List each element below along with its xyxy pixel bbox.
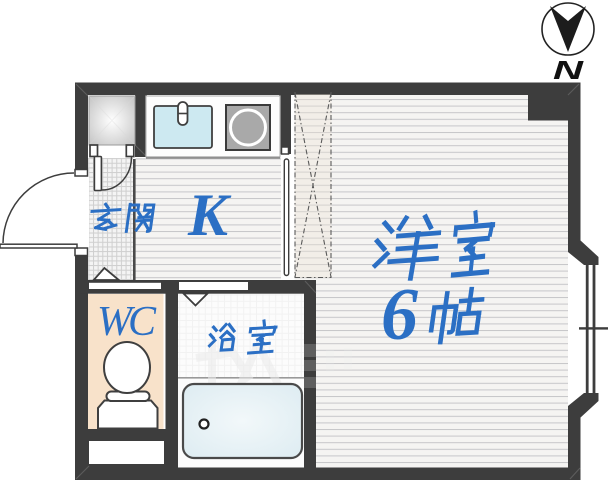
- svg-text:6: 6: [381, 274, 418, 356]
- svg-text:WC: WC: [97, 299, 157, 345]
- svg-text:K: K: [187, 182, 232, 248]
- svg-text:N: N: [553, 57, 584, 85]
